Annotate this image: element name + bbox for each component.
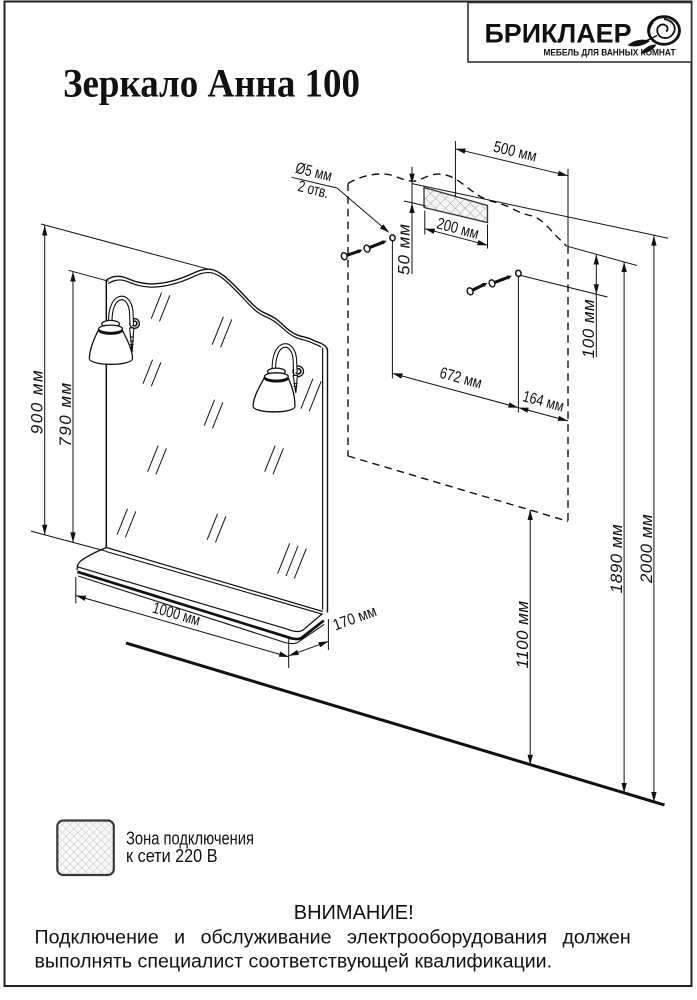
svg-text:100 мм: 100 мм (579, 299, 598, 358)
svg-text:Подключение и обслуживание эле: Подключение и обслуживание электрооборуд… (35, 927, 631, 949)
svg-text:к сети 220 В: к сети 220 В (126, 845, 218, 866)
svg-text:790 мм: 790 мм (56, 381, 75, 446)
svg-text:Зеркало Анна 100: Зеркало Анна 100 (63, 61, 360, 106)
svg-text:1890 мм: 1890 мм (607, 524, 626, 593)
svg-text:1100 мм: 1100 мм (513, 600, 532, 668)
svg-text:2000 мм: 2000 мм (637, 514, 656, 584)
svg-text:МЕБЕЛЬ ДЛЯ ВАННЫХ КОМНАТ: МЕБЕЛЬ ДЛЯ ВАННЫХ КОМНАТ (544, 48, 676, 58)
svg-text:БРИКЛАЕР: БРИКЛАЕР (485, 19, 632, 49)
svg-text:50 мм: 50 мм (394, 223, 413, 275)
svg-text:ВНИМАНИЕ!: ВНИМАНИЕ! (294, 902, 414, 924)
svg-text:выполнять специалист соответст: выполнять специалист соответствующей ква… (35, 951, 553, 973)
svg-text:900 мм: 900 мм (28, 369, 47, 434)
